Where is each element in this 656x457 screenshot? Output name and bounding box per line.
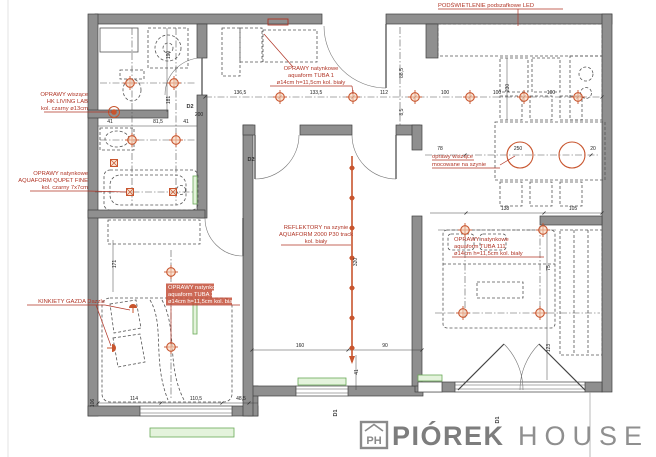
chair xyxy=(530,182,552,206)
annotation-tuba11: aquaform TUBA 11 xyxy=(168,292,217,298)
track-spot-icon xyxy=(350,226,355,231)
ceiling-spot-icon xyxy=(533,306,547,320)
track-spot-icon xyxy=(350,346,355,351)
dimension-label: 81,5 xyxy=(153,119,163,125)
wall-lamp-icon xyxy=(129,304,137,313)
track-end-arrow xyxy=(349,356,355,364)
pillow xyxy=(110,300,141,333)
pillow xyxy=(113,334,145,367)
chair xyxy=(500,182,522,206)
annotation-led-podszafkowe: PODŚWIETLENIE podszafkowe LED xyxy=(438,1,534,9)
door-label: D2 xyxy=(247,157,254,163)
bedroom2-wardrobe xyxy=(560,230,602,355)
annotation-wiszace-szyna: mocowane na szynie xyxy=(432,162,486,168)
annotation-tuba111: ø14cm h=11,5cm kol. biały xyxy=(454,251,523,257)
annotation-leader xyxy=(105,305,130,310)
ceiling-spot-icon xyxy=(164,265,178,279)
living-window-sill xyxy=(298,378,346,385)
annotation-qupet-fine: kol. czarny 7x7cm xyxy=(42,185,89,191)
dimension-label: 123 xyxy=(546,344,552,353)
annotation-tuba1: ø14cm h=11,5cm kol. biały xyxy=(277,80,346,86)
annotation-tuba111: aquaform TUBA 111 xyxy=(454,244,506,250)
annotation-tuba1: aquaform TUBA 1 xyxy=(288,73,334,79)
living-right-door-arc xyxy=(352,135,396,179)
dimension-label: 160 xyxy=(296,343,305,349)
bench xyxy=(477,282,523,298)
dimension-label: 138 xyxy=(501,206,510,212)
dimension-label: 250 xyxy=(514,146,523,152)
dimension-label: 41 xyxy=(183,119,189,125)
kitchen-counter-top xyxy=(438,24,602,56)
bedroom1-bed xyxy=(102,298,232,402)
annotation-tuba11: ø14cm h=11,5cm kol. biały xyxy=(168,299,237,305)
dimension-label: 100 xyxy=(493,90,502,96)
walls xyxy=(88,14,612,416)
dimension-label: 41 xyxy=(354,369,360,375)
small-window xyxy=(418,382,442,392)
bedroom1-door-arc xyxy=(205,218,243,256)
ceiling-spot-icon xyxy=(169,133,183,147)
dimension-label: 20 xyxy=(590,146,596,152)
dimension-label: 114 xyxy=(130,396,138,402)
bathroom-door-arc xyxy=(165,58,202,95)
hall-wardrobe xyxy=(222,28,240,76)
logo-brand-bold: PIÓREK xyxy=(392,420,505,451)
ceiling-spot-icon xyxy=(123,76,137,90)
square-spot-icon xyxy=(127,189,134,196)
wall-lamp-icon xyxy=(107,344,116,352)
annotation-oprawy-wiszace-hk: OPRAWY wiszące xyxy=(40,92,88,98)
kitchen-sink xyxy=(579,67,593,81)
logo: PH PIÓREK HOUSE xyxy=(361,420,649,451)
dimension-label: 320 xyxy=(353,258,359,267)
square-spot-icon xyxy=(170,189,177,196)
dimension-label: 48,5 xyxy=(236,396,246,402)
towel-radiator xyxy=(193,176,197,204)
kitchen-counter-right xyxy=(570,56,602,120)
dimension-label: 88,5 xyxy=(399,68,405,78)
dining-table xyxy=(495,122,605,180)
dimension-label: 90 xyxy=(382,343,388,349)
logo-roof-icon xyxy=(365,425,383,432)
door-label: D2 xyxy=(186,104,193,110)
annotation-qupet-fine: OPRAWY natynkowe xyxy=(33,171,88,177)
dimension-label: 105 xyxy=(569,206,578,212)
dimension-label: 75 xyxy=(546,265,552,271)
ceiling-spot-icon xyxy=(125,133,139,147)
living-left-door-arc xyxy=(255,135,299,179)
annotation-tuba1: OPRAWY natynkowe xyxy=(284,66,339,72)
dimension-label: 133,5 xyxy=(310,90,323,96)
square-spot-icon xyxy=(111,160,118,167)
annotation-oprawy-wiszace-hk: HK LIVING LAB xyxy=(47,99,88,105)
dimension-label: 78 xyxy=(437,146,443,152)
radiator-green xyxy=(150,428,234,437)
chair xyxy=(530,96,552,120)
ceiling-spot-icon xyxy=(408,90,422,104)
dimension-label: 190 xyxy=(166,51,172,60)
washing-machine xyxy=(148,28,188,68)
annotation-reflektory: REFLEKTORY na szynie xyxy=(284,225,348,231)
living-window xyxy=(296,386,348,396)
annotation-oprawy-wiszace-hk: kol. czarny ø13cm xyxy=(41,106,88,112)
ceiling-spot-icon xyxy=(571,90,585,104)
bedroom1-window xyxy=(140,406,232,416)
bedroom1-wardrobe xyxy=(108,220,200,244)
floorplan-page: 136,5133,51121001001004181,5412001901818… xyxy=(0,0,656,457)
dimension-label: 106 xyxy=(90,399,96,408)
floor-plan-svg: 136,5133,51121001001004181,5412001901818… xyxy=(0,0,656,457)
small-window-sill xyxy=(418,375,442,381)
dimension-label: 200 xyxy=(195,112,204,118)
bathtub xyxy=(104,170,198,210)
dimension-label: 181 xyxy=(166,96,172,105)
annotation-reflektory: kol. biały xyxy=(305,239,328,245)
ceiling-spot-icon xyxy=(463,90,477,104)
annotations-layer: OPRAWY wisząceHK LIVING LABkol. czarny ø… xyxy=(18,1,563,346)
dimension-label: 110,5 xyxy=(190,396,202,402)
annotation-tuba111: OPRAWY natynkowe xyxy=(454,237,509,243)
chair xyxy=(500,96,522,120)
logo-brand-light: HOUSE xyxy=(518,421,649,451)
dimension-label: 112 xyxy=(380,90,388,96)
doors xyxy=(165,24,585,390)
track-spot-icon xyxy=(350,166,355,171)
annotation-wiszace-szyna: oprawy wiszące xyxy=(432,154,473,160)
ceiling-spot-icon xyxy=(458,223,472,237)
dimension-label: 230 xyxy=(505,84,511,93)
ceiling-spot-icon xyxy=(456,306,470,320)
annotation-tuba11: OPRAWY natynkowe xyxy=(168,285,223,291)
track-spot-icon xyxy=(350,196,355,201)
annotation-leader xyxy=(264,34,293,67)
annotation-reflektory: AQUAFORM 2000 P30 track xyxy=(279,232,353,238)
chair xyxy=(560,182,582,206)
logo-initials: PH xyxy=(366,435,381,447)
track-spot-icon xyxy=(350,286,355,291)
annotation-qupet-fine: AQUAFORM QUPET FINE xyxy=(18,178,88,184)
dimension-label: 136,5 xyxy=(234,90,247,96)
door-label: D1 xyxy=(333,409,339,416)
dimension-label: 41 xyxy=(107,119,113,125)
dimension-label: 100 xyxy=(547,90,556,96)
ceiling-spot-icon xyxy=(273,90,287,104)
track-spot-icon xyxy=(350,316,355,321)
dimension-label: 8,5 xyxy=(399,108,405,115)
annotation-kinkiety: KINKIETY GAZDA Dazzle xyxy=(38,299,105,305)
dimension-label: 100 xyxy=(441,90,450,96)
dimension-label: 171 xyxy=(112,260,118,269)
